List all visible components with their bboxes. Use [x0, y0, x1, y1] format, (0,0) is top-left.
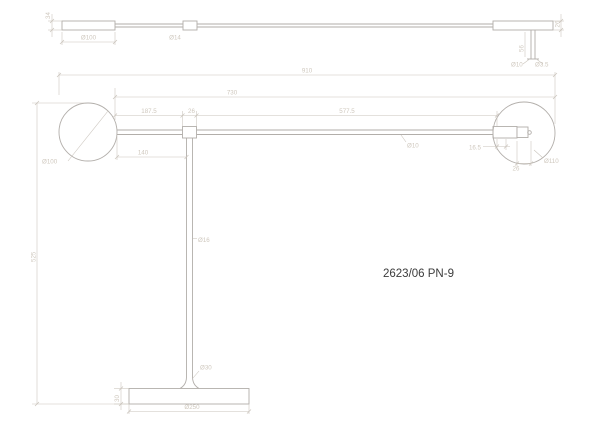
dim-arm-tube-label: Ø10	[407, 143, 419, 150]
dim-pole-diameter: Ø16	[193, 237, 210, 244]
dim-hub-inset-label: 16.5	[469, 145, 482, 152]
pole-joint	[183, 127, 197, 139]
dim-segments-row: 187.5 26 577.5	[113, 108, 499, 126]
arm-joint	[183, 21, 197, 30]
hub-collar	[493, 127, 517, 139]
dim-head-length-label: Ø100	[81, 35, 97, 42]
foot-flare-right	[193, 377, 200, 389]
dim-arm-tube: Ø10	[401, 135, 419, 150]
dim-tip-hole-label: Ø3.5	[535, 62, 549, 69]
dim-shade-diameter: Ø100	[42, 111, 108, 166]
dim-joint-width-label: 26	[188, 108, 195, 115]
top-view: 34 Ø100 Ø14 26 56 Ø10	[45, 12, 564, 69]
hub-pin	[517, 127, 528, 138]
dim-stem-foot: Ø30	[193, 365, 212, 379]
dim-stem-foot-label: Ø30	[200, 365, 212, 372]
foot-flare-left	[180, 377, 187, 389]
shade-circle	[59, 103, 117, 161]
dim-base-thickness: 30	[114, 382, 129, 410]
dim-endcap-thickness-label: 26	[555, 20, 562, 27]
drawing-svg: 34 Ø100 Ø14 26 56 Ø10	[0, 0, 600, 425]
dim-base-diameter-label: Ø250	[184, 404, 200, 411]
dim-overall-height-label: 525	[31, 251, 38, 262]
dim-arm-reach-label: 730	[227, 90, 238, 97]
dim-hub-inset: 16.5	[469, 139, 510, 152]
dim-hub-pin: 26	[513, 141, 533, 173]
dim-hub-pin-label: 26	[513, 166, 520, 173]
head-plate	[62, 21, 115, 30]
dim-overall-width-label: 910	[302, 68, 313, 75]
dim-arm-diameter-label: Ø14	[169, 35, 181, 42]
base-plate	[129, 389, 249, 405]
lamp-technical-drawing: 34 Ø100 Ø14 26 56 Ø10	[0, 0, 600, 425]
hub-plate	[493, 21, 553, 30]
dim-base-diameter: Ø250	[127, 404, 251, 414]
dim-rod-diameter-label: Ø10	[511, 62, 523, 69]
dim-shade-diameter-label: Ø100	[42, 159, 58, 166]
dim-endcap-thickness: 26	[553, 14, 564, 37]
dim-rod-tip: Ø10 Ø3.5	[511, 60, 549, 69]
dim-head-clearance: 140	[115, 136, 189, 160]
dim-rod-length-label: 56	[519, 45, 526, 52]
dim-hub-diameter-label: Ø110	[544, 158, 559, 165]
dim-pole-diameter-label: Ø16	[198, 237, 210, 244]
front-view: 910 730 187.5 26 577.5 140	[31, 68, 560, 415]
model-number-label: 2623/06 PN-9	[383, 268, 454, 280]
dim-head-to-joint-label: 187.5	[141, 108, 157, 115]
dim-base-thickness-label: 30	[114, 395, 121, 402]
dim-hub-diameter: Ø110	[534, 150, 559, 165]
dim-arm-reach: 730	[113, 88, 557, 120]
dim-head-length: Ø100	[60, 32, 117, 45]
dim-head-thickness-label: 34	[45, 12, 52, 19]
dim-rod-length: 56	[519, 32, 526, 57]
dim-head-clearance-label: 140	[138, 150, 149, 157]
dim-head-thickness: 34	[45, 12, 62, 37]
dim-arm-front-segment-label: 577.5	[339, 108, 355, 115]
